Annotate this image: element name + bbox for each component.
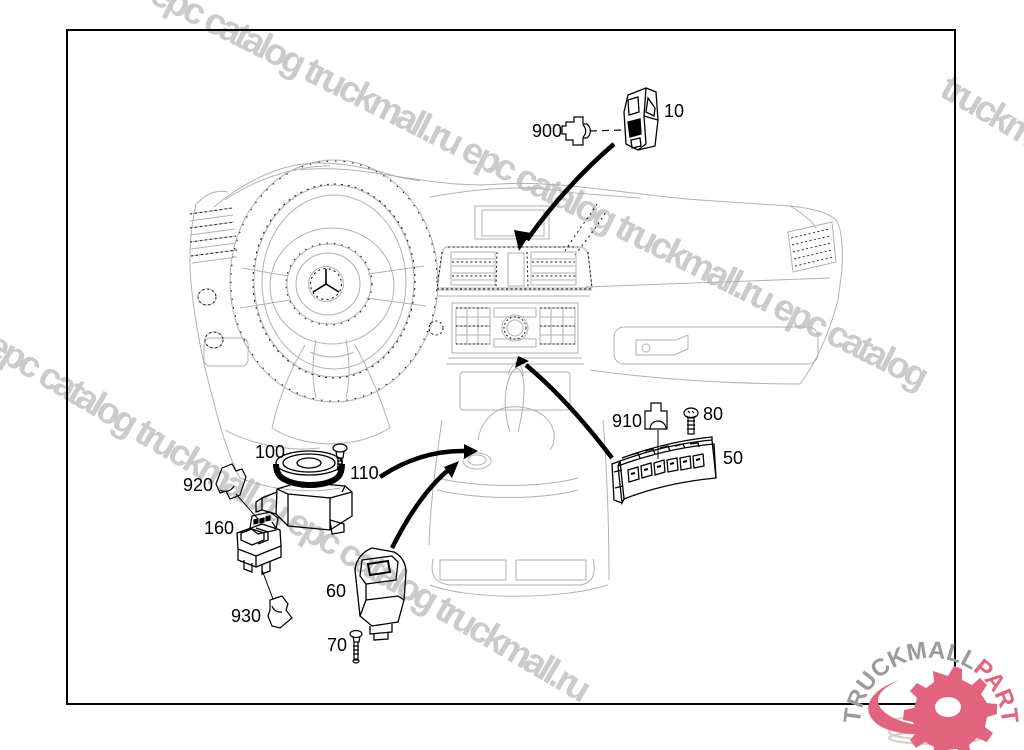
svg-text:110: 110 <box>350 463 379 483</box>
svg-text:910: 910 <box>612 411 642 431</box>
svg-text:930: 930 <box>231 606 261 626</box>
svg-text:100: 100 <box>255 442 285 462</box>
svg-text:70: 70 <box>327 635 347 655</box>
svg-text:920: 920 <box>183 475 213 495</box>
svg-text:10: 10 <box>664 101 684 121</box>
svg-text:900: 900 <box>532 121 562 141</box>
svg-text:160: 160 <box>204 518 234 538</box>
svg-text:80: 80 <box>703 404 723 424</box>
svg-text:50: 50 <box>723 448 743 468</box>
svg-text:60: 60 <box>326 581 346 601</box>
